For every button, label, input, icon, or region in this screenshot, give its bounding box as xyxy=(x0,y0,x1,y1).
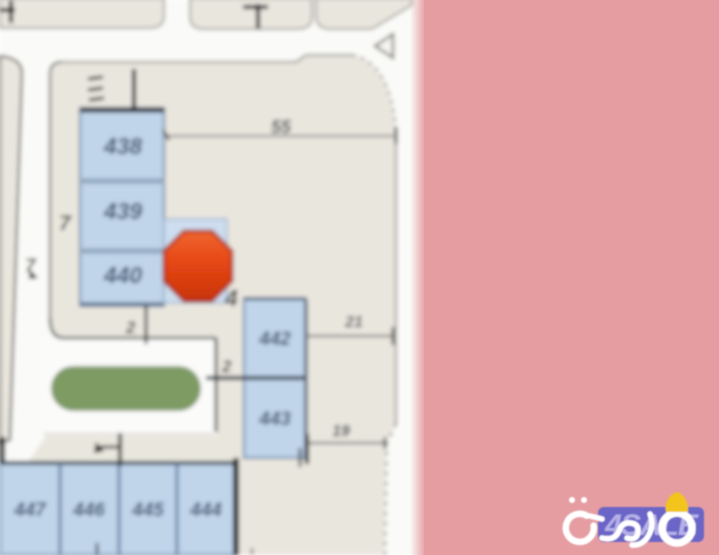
svg-text:2: 2 xyxy=(221,357,232,376)
svg-text:439: 439 xyxy=(103,198,143,224)
svg-text:21: 21 xyxy=(344,314,363,331)
svg-text:55: 55 xyxy=(271,117,292,137)
svg-text:440: 440 xyxy=(103,262,143,288)
svg-text:2: 2 xyxy=(125,318,136,337)
svg-text:447: 447 xyxy=(13,500,47,521)
svg-text:442: 442 xyxy=(258,329,291,350)
svg-text:445: 445 xyxy=(131,500,164,521)
svg-text:444: 444 xyxy=(189,500,222,521)
svg-text:7: 7 xyxy=(59,212,72,235)
svg-text:443: 443 xyxy=(258,409,291,430)
svg-text:446: 446 xyxy=(72,500,105,521)
svg-text:19: 19 xyxy=(332,423,350,440)
svg-text:438: 438 xyxy=(103,133,143,159)
